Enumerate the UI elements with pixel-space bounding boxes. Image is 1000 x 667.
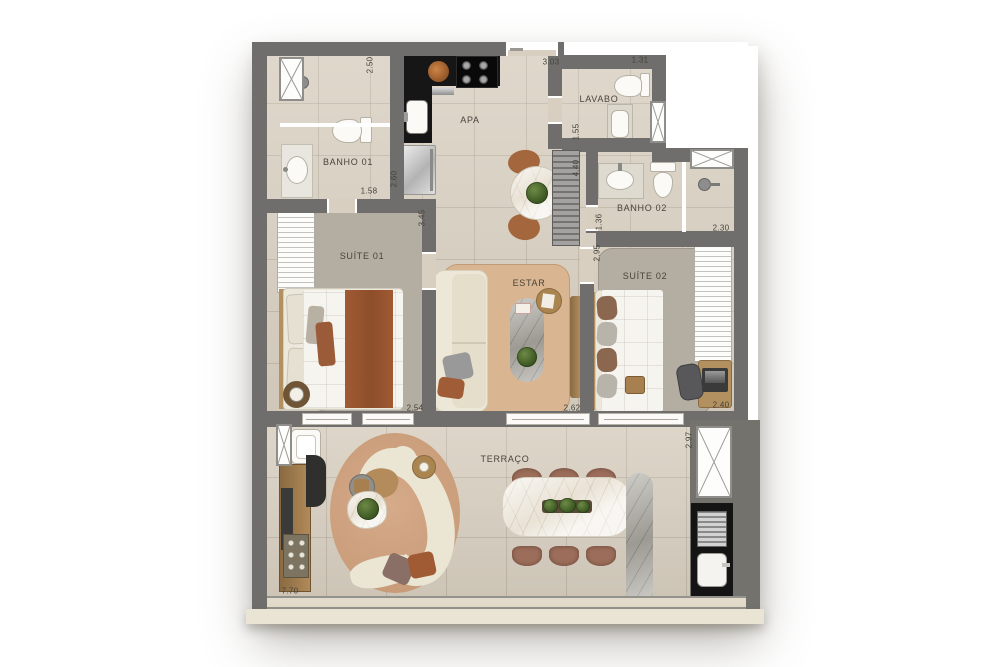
window-icon <box>276 424 292 466</box>
bbq-sink <box>697 553 727 587</box>
kitchen-sink <box>406 100 428 134</box>
window-icon <box>279 57 304 101</box>
book <box>515 303 531 314</box>
exterior-mask <box>666 42 748 148</box>
wall <box>580 284 594 413</box>
dimension-label: 2.60 <box>390 171 399 188</box>
pillow-gray <box>596 373 618 399</box>
suite01-door <box>422 252 436 290</box>
wall <box>652 69 666 103</box>
dimension-label: 2.50 <box>366 57 375 74</box>
clock-icon <box>289 387 304 402</box>
dimension-label: 2.40 <box>713 401 730 410</box>
entry-door-leaf <box>510 48 523 51</box>
sliding-door <box>302 413 352 425</box>
window-icon <box>650 101 666 143</box>
table-plant <box>526 182 548 204</box>
room-label-suite01: SUÍTE 01 <box>340 251 385 261</box>
wall <box>252 42 267 612</box>
terrace-chair <box>512 546 542 566</box>
stone-bench <box>626 473 653 597</box>
faucet-icon <box>618 163 622 171</box>
bbq-grill <box>697 511 727 547</box>
planter-plant <box>576 500 590 513</box>
cutting-board <box>428 61 449 82</box>
room-label-terraco: TERRAÇO <box>481 454 530 464</box>
sliding-door <box>506 413 590 425</box>
wall <box>390 56 404 213</box>
room-label-lavabo: LAVABO <box>580 94 619 104</box>
exterior-mask <box>564 42 666 55</box>
dimension-label: 1.58 <box>361 187 378 196</box>
wall <box>422 290 436 413</box>
sink-basin <box>611 110 629 138</box>
room-label-suite02: SUÍTE 02 <box>623 271 668 281</box>
floorplan-canvas: BANHO 01 APA LAVABO BANHO 02 SUÍTE 01 ES… <box>0 0 1000 667</box>
room-label-apa: APA <box>460 115 479 125</box>
planter-plant <box>559 498 576 513</box>
pillow-brown <box>596 347 618 372</box>
pillow-gray <box>596 321 618 346</box>
dimension-label: 3.03 <box>543 58 560 67</box>
terrace-plant <box>357 498 379 520</box>
kettle-grill <box>306 455 326 507</box>
bed-runner <box>345 290 393 408</box>
sofa-seam <box>452 342 486 344</box>
bed-tray <box>625 376 645 394</box>
room-label-banho02: BANHO 02 <box>617 203 667 213</box>
window-icon <box>696 426 732 498</box>
terrace-railing <box>267 596 746 609</box>
cup-icon <box>419 462 429 472</box>
laptop-screen <box>705 371 725 383</box>
window-icon <box>690 149 734 169</box>
dimension-label: 3.45 <box>418 210 427 227</box>
dimension-label: 1.36 <box>595 214 604 231</box>
wall <box>734 160 748 422</box>
terrace-chair <box>549 546 579 566</box>
side-table-card <box>541 293 555 309</box>
dimension-label: 2.30 <box>713 224 730 233</box>
dimension-label: 2.62 <box>564 404 581 413</box>
dimension-label: 4.40 <box>572 160 581 177</box>
sink-basin <box>606 170 634 190</box>
faucet-icon <box>283 167 288 172</box>
sink-basin <box>286 156 308 184</box>
room-label-banho01: BANHO 01 <box>323 157 373 167</box>
wall <box>252 42 508 56</box>
dimension-label: 2.54 <box>407 404 424 413</box>
wall <box>596 231 748 247</box>
planter-plant <box>543 499 558 513</box>
cushion-rust <box>437 376 466 399</box>
toilet-tank <box>650 162 676 172</box>
coffee-table-plant <box>517 347 537 367</box>
dimension-label: 1.31 <box>632 56 649 65</box>
balcony-slab <box>246 609 764 624</box>
room-label-estar: ESTAR <box>513 278 546 288</box>
grill-panel <box>283 534 309 578</box>
fridge-handle <box>430 149 433 191</box>
bbq-faucet-icon <box>722 563 730 567</box>
sliding-door <box>598 413 684 425</box>
dimension-label: 2.95 <box>593 245 602 262</box>
sliding-door <box>362 413 414 425</box>
pillow-brown <box>596 295 618 321</box>
dimension-label: 1.55 <box>572 124 581 141</box>
banho01-door <box>327 199 357 213</box>
shower-arm <box>710 183 720 186</box>
shower-glass <box>682 162 686 232</box>
dimension-label: 7.70 <box>282 587 299 596</box>
wardrobe <box>277 205 315 293</box>
dimension-label: 2.97 <box>685 432 694 449</box>
terrace-chair <box>586 546 616 566</box>
cooktop <box>456 56 498 88</box>
shower-glass <box>280 123 390 127</box>
wardrobe <box>694 242 732 362</box>
lavabo-door <box>548 96 562 124</box>
